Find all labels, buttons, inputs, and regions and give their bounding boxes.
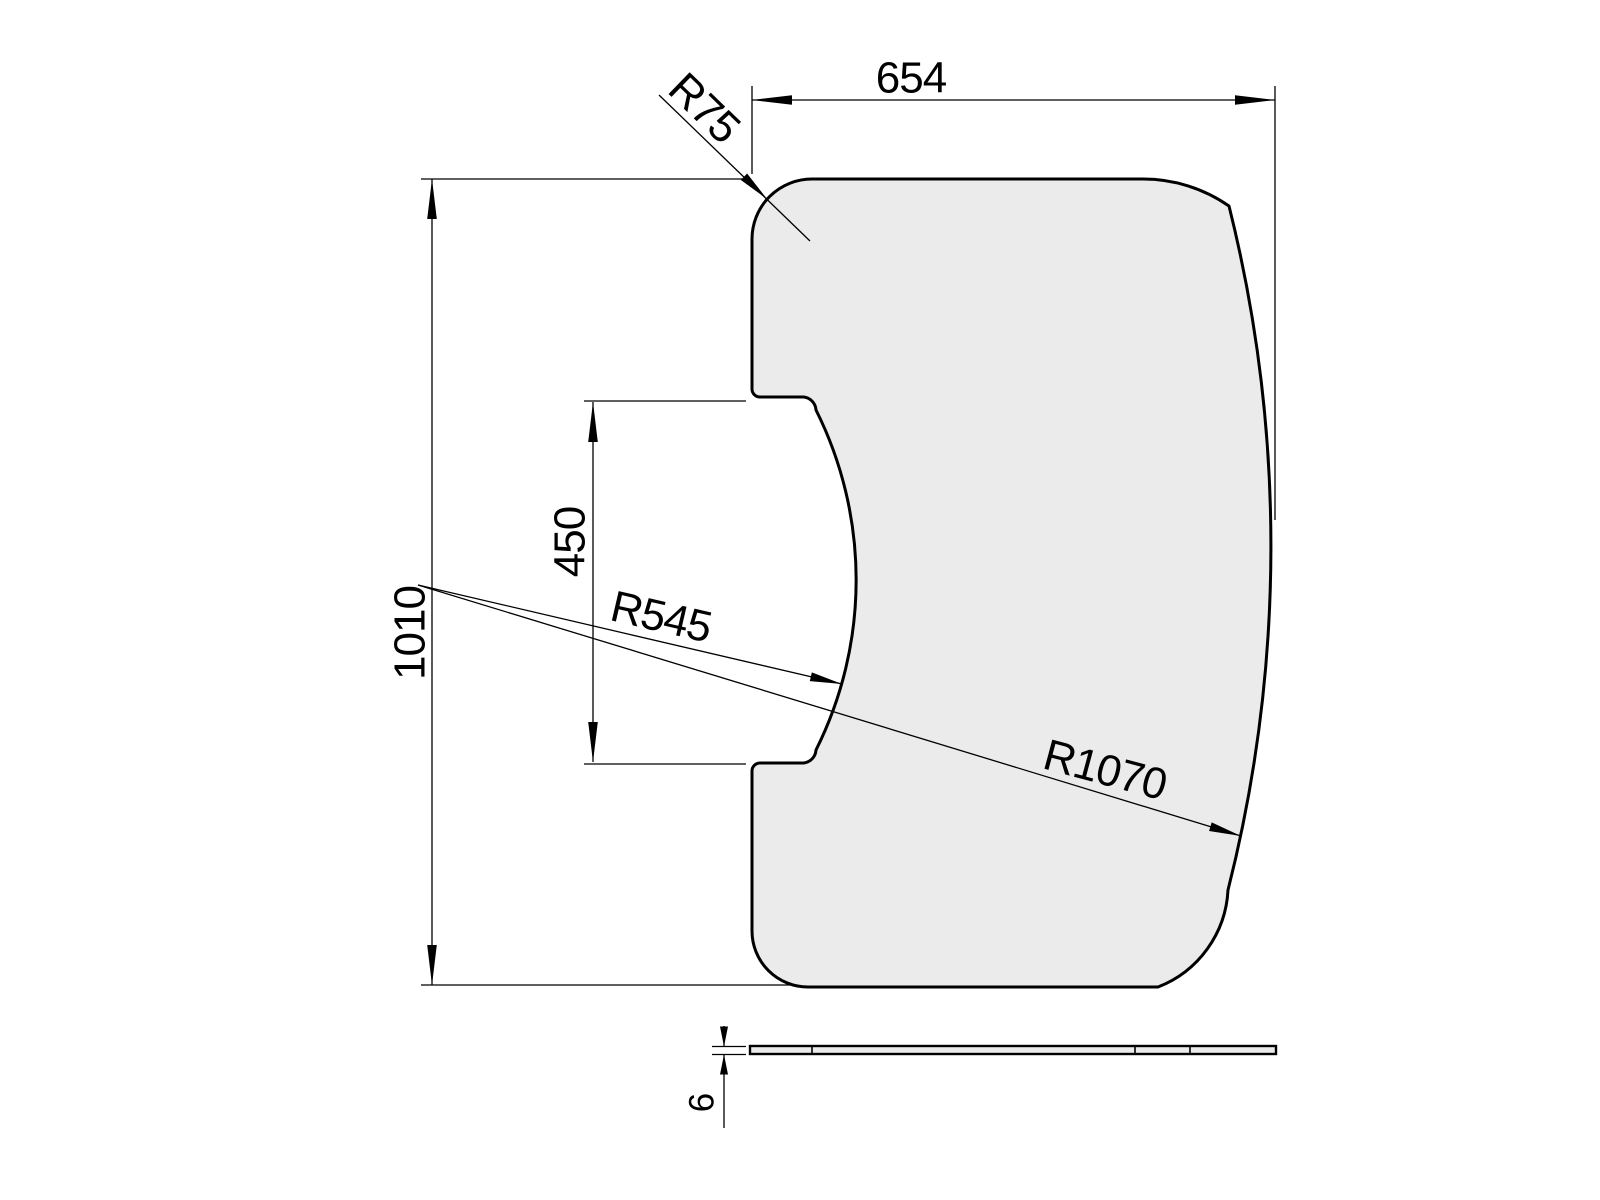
dimension-thickness: 6 <box>683 1026 746 1128</box>
arrowhead-top <box>427 179 437 219</box>
arrowhead-radius <box>741 174 770 203</box>
dimension-height: 1010 <box>386 179 792 985</box>
arrowhead-bottom <box>588 722 598 762</box>
dimension-label-width: 654 <box>876 54 947 103</box>
dimension-label-cutout-height: 450 <box>546 507 595 577</box>
dimension-label-thickness: 6 <box>683 1094 722 1112</box>
dimension-cutout-height: 450 <box>546 401 746 764</box>
dimension-label-corner-radius: R75 <box>659 63 749 152</box>
front-view <box>752 179 1271 987</box>
side-view <box>750 1046 1276 1054</box>
arrowhead-up <box>720 1055 728 1075</box>
part-outline-side <box>750 1046 1276 1054</box>
arrowhead-top <box>588 402 598 442</box>
arrowhead-bottom <box>427 945 437 985</box>
drawing-sheet: 654 1010 450 R75 R545 R1070 <box>0 0 1600 1200</box>
arrowhead-left <box>752 95 792 105</box>
dimension-label-cutout-radius: R545 <box>606 582 716 653</box>
technical-drawing-canvas: 654 1010 450 R75 R545 R1070 <box>0 0 1600 1200</box>
dimension-label-height: 1010 <box>386 586 435 680</box>
arrowhead-radius <box>810 672 843 688</box>
part-outline-front <box>752 179 1271 987</box>
arrowhead-down <box>720 1027 728 1047</box>
arrowhead-right <box>1235 95 1275 105</box>
dimension-cutout-radius: R545 <box>418 582 843 689</box>
